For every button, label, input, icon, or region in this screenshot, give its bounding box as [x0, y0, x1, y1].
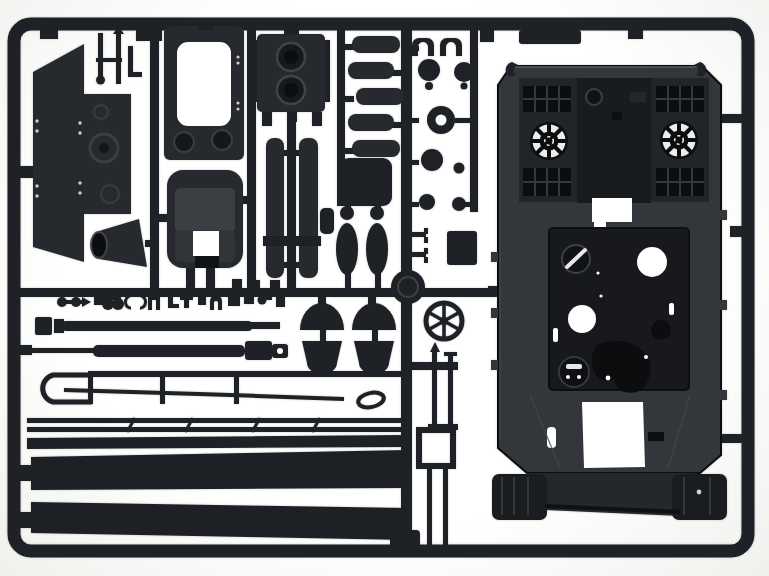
- small-parts-column: [404, 38, 477, 265]
- cooling-fan-right: [660, 121, 698, 159]
- engine-deck: [519, 78, 709, 203]
- hatch-panel: [164, 20, 244, 160]
- hull-cutout: [582, 402, 645, 468]
- hull-cutout: [592, 198, 632, 222]
- round-hole: [637, 247, 667, 277]
- block-part: [447, 231, 477, 265]
- jack-parts: [419, 342, 458, 548]
- muffler-cylinders: [340, 36, 404, 206]
- clamp-part: [412, 38, 434, 56]
- frame-tab: [730, 226, 742, 237]
- frame-tab: [19, 512, 32, 528]
- frame-tab: [19, 465, 32, 481]
- round-hatch: [559, 357, 589, 387]
- frame-tab: [480, 30, 494, 42]
- frame-tab: [40, 30, 58, 39]
- model-kit-photo: [0, 0, 769, 576]
- frame-gate-plate: [519, 30, 581, 44]
- hull-recess-bay: [549, 228, 689, 393]
- clamp-part: [440, 38, 462, 56]
- filter-box: [252, 27, 330, 126]
- idler-wheel: [391, 270, 425, 304]
- gun-barrels: [27, 317, 288, 360]
- bottle-fittings: [320, 206, 388, 275]
- hull-slot: [547, 427, 556, 448]
- side-rails: [27, 418, 407, 449]
- wheel-part: [421, 149, 443, 171]
- cooling-fan-left: [530, 122, 568, 160]
- tow-cable: [43, 374, 385, 410]
- deck-port: [586, 89, 602, 105]
- spoked-wheel: [426, 303, 462, 339]
- sprue-svg: [0, 0, 769, 576]
- hatch-tub: [167, 170, 243, 268]
- wheel-part: [454, 62, 474, 82]
- pin-parts: [96, 26, 142, 85]
- mudguard-ends: [300, 303, 396, 374]
- frame-tab: [628, 30, 643, 39]
- fender-strips: [31, 450, 408, 540]
- wheel-part: [418, 59, 440, 81]
- tank-upper-hull: [491, 62, 727, 520]
- cone-part: [91, 219, 147, 267]
- round-hole: [568, 305, 596, 333]
